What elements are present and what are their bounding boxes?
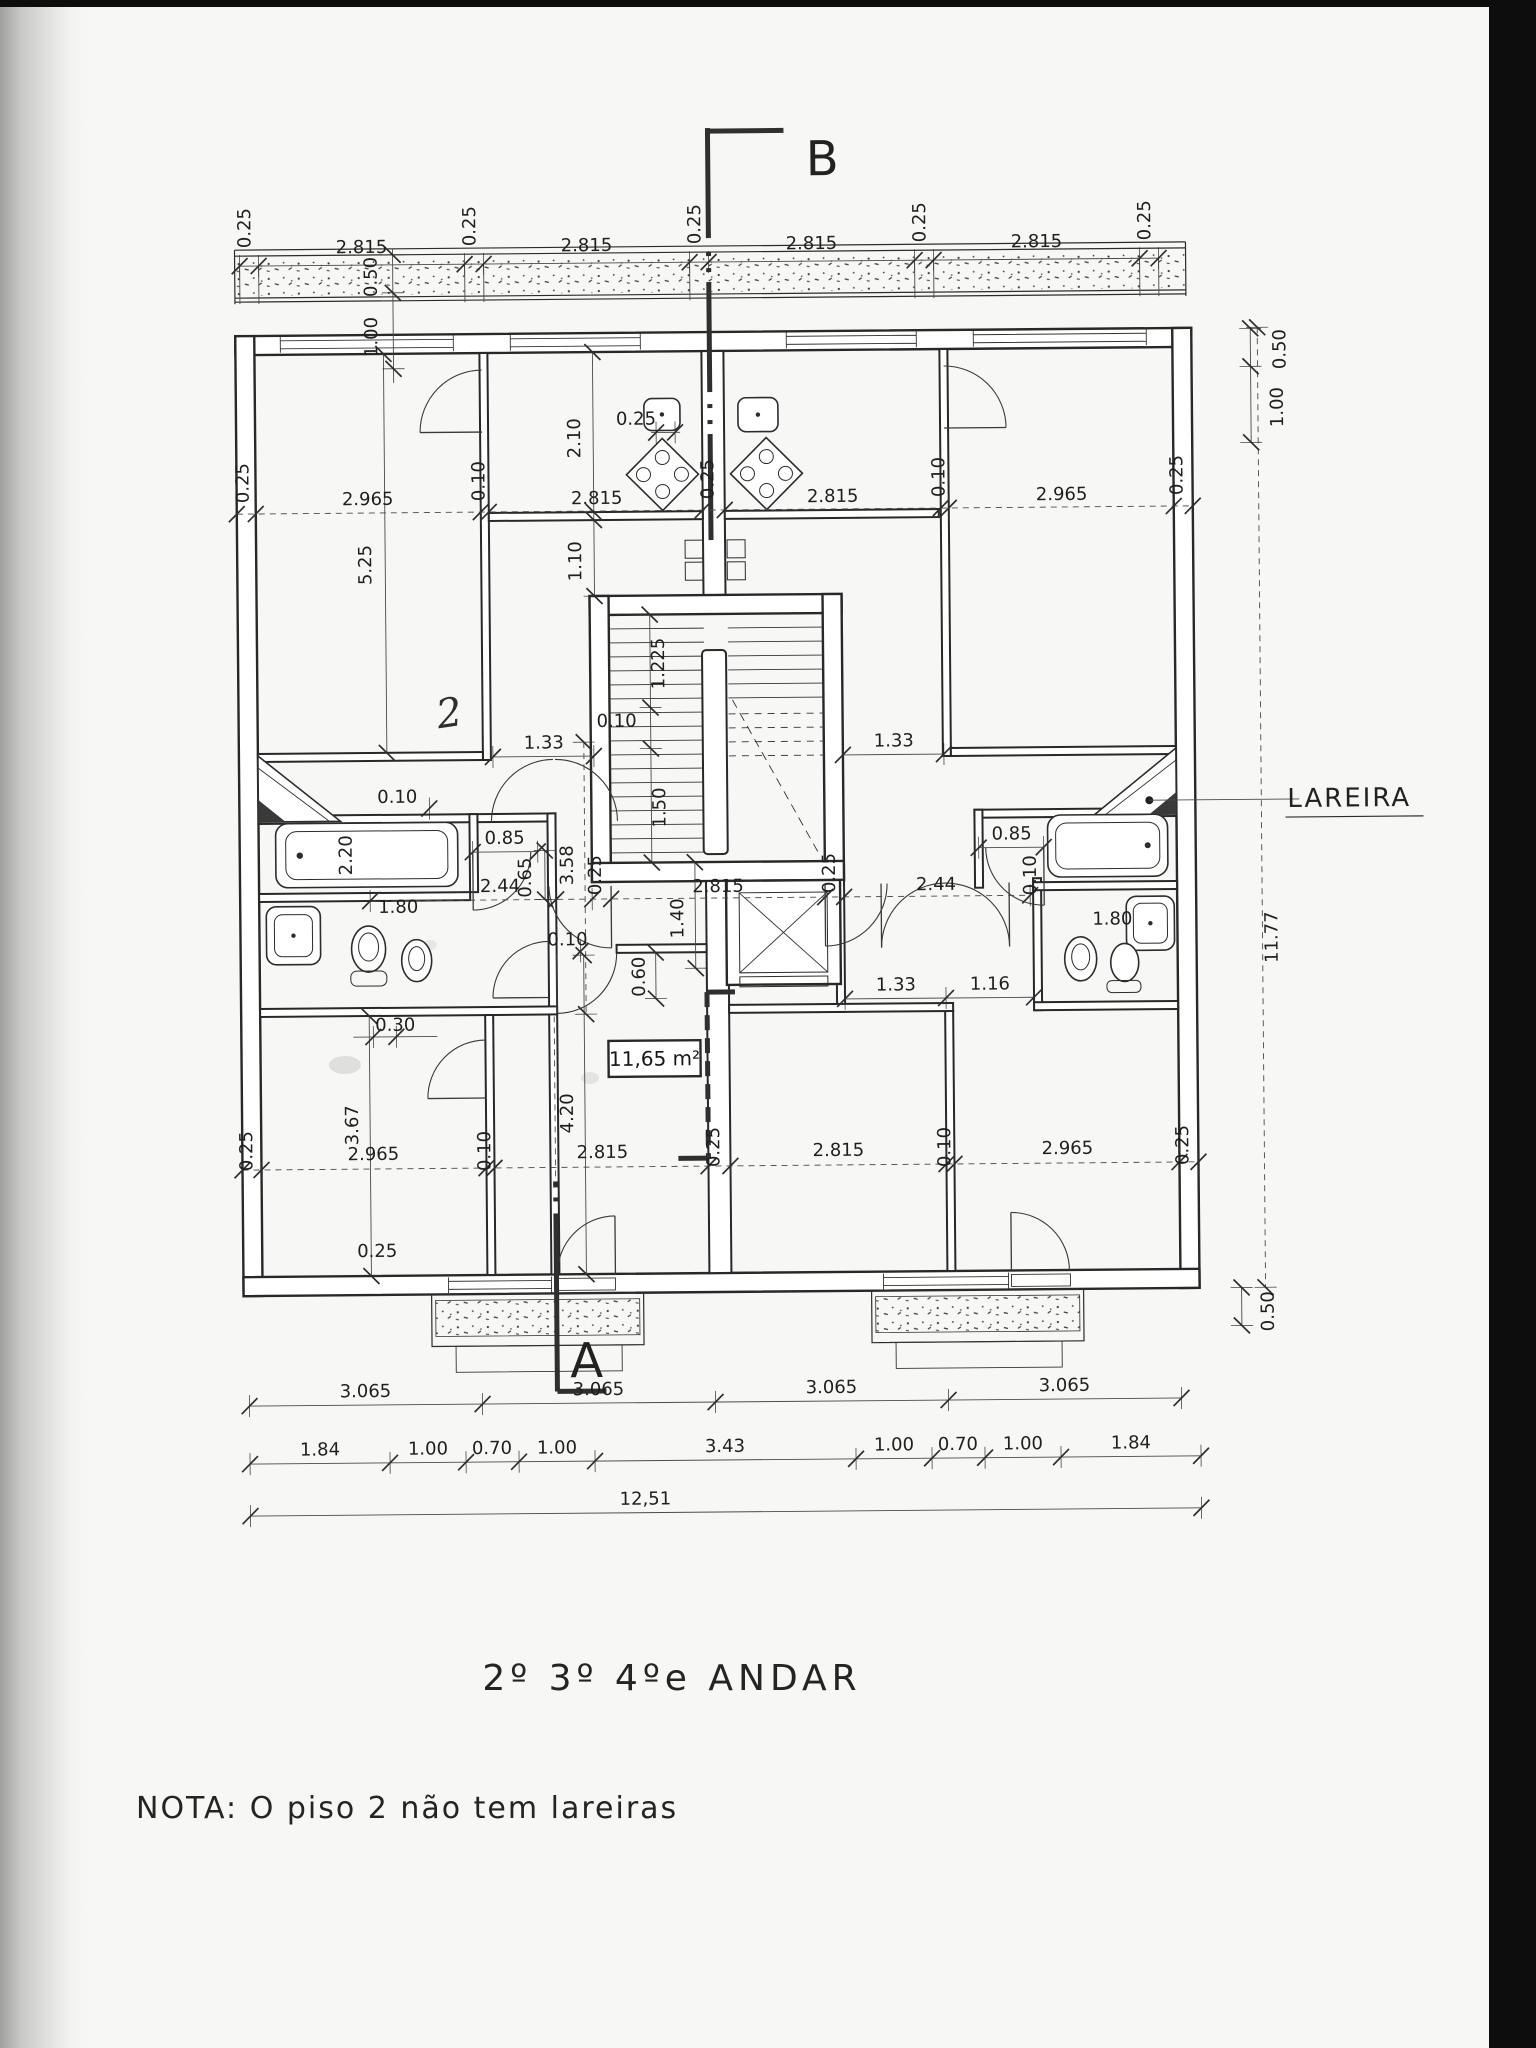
dim-label: 5.25 — [355, 545, 376, 585]
dim-label: 0.25 — [585, 855, 606, 895]
dim-label: 2.20 — [336, 835, 357, 875]
dim-label: 0.10 — [377, 787, 417, 808]
dim-label: 0.10 — [547, 929, 587, 950]
dim-label: 2.965 — [342, 489, 394, 510]
drawing-note: NOTA: O piso 2 não tem lareiras — [136, 1791, 678, 1826]
dim-label: 2.965 — [1041, 1138, 1093, 1159]
dim-label: 0.30 — [375, 1015, 415, 1036]
dim-label: 1.225 — [648, 638, 669, 690]
dim-label: 1.00 — [1267, 387, 1288, 427]
dim-label: 1.10 — [565, 541, 586, 581]
floor-plan-canvas: B A — [0, 0, 1536, 2048]
dim-label: 0.50 — [1258, 1291, 1279, 1331]
section-letter-b: B — [805, 131, 838, 187]
scanned-floor-plan-page: B A — [0, 0, 1536, 2048]
dim-label: 1.50 — [649, 787, 670, 827]
dim-label: 4.20 — [557, 1093, 578, 1133]
scan-edge-shadow — [0, 0, 95, 2048]
dim-label: 0.25 — [697, 459, 718, 499]
dim-label: 3.065 — [806, 1377, 858, 1398]
dim-label: 0.25 — [819, 853, 840, 893]
dim-label: 0.25 — [1172, 1125, 1193, 1165]
area-label: 11,65 m² — [609, 1046, 700, 1071]
dim-label: 11.77 — [1261, 911, 1282, 963]
dim-label: 0.25 — [234, 208, 255, 248]
bidet-right — [1111, 943, 1139, 981]
dim-label: 2.965 — [348, 1144, 400, 1165]
stair-newel — [702, 650, 728, 854]
dim-label: 1.16 — [970, 973, 1010, 994]
dim-label: 2.10 — [564, 418, 585, 458]
dim-label: 1.80 — [1092, 908, 1132, 929]
dim-label: 1.84 — [300, 1439, 340, 1460]
dim-label: 2.44 — [916, 874, 956, 895]
dim-label: 2.815 — [807, 486, 859, 507]
dim-label: 0.50 — [361, 257, 382, 297]
bidet-left — [402, 940, 432, 982]
dim-label: 3.43 — [705, 1436, 745, 1457]
dim-label: 0.10 — [474, 1131, 495, 1171]
dim-label: 2.965 — [1036, 484, 1088, 505]
dim-label: 0.70 — [938, 1434, 978, 1455]
dim-label: 0.25 — [703, 1127, 724, 1167]
dim-label: 3.065 — [340, 1381, 392, 1402]
dim-label: 2.815 — [336, 237, 388, 258]
dim-label: 2.815 — [561, 235, 613, 256]
dim-label: 3.065 — [573, 1379, 625, 1400]
dim-label: 0.25 — [232, 463, 253, 503]
dim-label: 12,51 — [620, 1488, 672, 1509]
dim-label: 2.815 — [786, 233, 838, 254]
scan-artifacts — [0, 0, 1536, 2048]
dim-label: 0.10 — [934, 1127, 955, 1167]
lareira-label: LAREIRA — [1287, 783, 1411, 814]
dim-label: 0.25 — [616, 409, 656, 430]
dim-label: 0.25 — [459, 206, 480, 246]
dim-label: 0.10 — [928, 457, 949, 497]
dim-label: 2.815 — [813, 1140, 865, 1161]
scan-top-bar — [0, 0, 1490, 7]
stair-core-wall-top — [590, 594, 842, 615]
dim-label: 0.10 — [596, 711, 636, 732]
dim-label: 1.00 — [1003, 1433, 1043, 1454]
dim-label: 2.815 — [1011, 231, 1063, 252]
dim-label: 3.58 — [557, 845, 578, 885]
dim-label: 1.33 — [876, 974, 916, 995]
dim-label: 0.85 — [991, 823, 1031, 844]
dim-label: 1.84 — [1111, 1432, 1151, 1453]
dim-label: 0.25 — [236, 1131, 257, 1171]
dim-label: 1.00 — [874, 1434, 914, 1455]
dim-label: 0.25 — [357, 1241, 397, 1262]
dim-label: 0.10 — [468, 461, 489, 501]
dim-label: 0.25 — [909, 202, 930, 242]
dim-label: 0.85 — [484, 828, 524, 849]
drawing-title: 2º 3º 4ºe ANDAR — [482, 1658, 861, 1699]
dim-label: 1.80 — [378, 897, 418, 918]
dim-label: 2.815 — [692, 876, 744, 897]
dim-label: 2.815 — [577, 1142, 629, 1163]
dim-label: 0.50 — [1269, 329, 1290, 369]
dim-label: 2.44 — [480, 876, 520, 897]
dim-label: 1.40 — [667, 898, 688, 938]
dim-label: 1.00 — [408, 1438, 448, 1459]
dim-label: 1.33 — [874, 730, 914, 751]
dim-label: 2.815 — [571, 488, 623, 509]
dim-label: 3.67 — [342, 1105, 363, 1145]
dim-label: 0.25 — [1134, 200, 1155, 240]
dim-label: 0.10 — [1020, 855, 1041, 895]
dim-label: 3.065 — [1039, 1375, 1091, 1396]
dim-label: 0.25 — [1166, 455, 1187, 495]
dim-label: 0.25 — [684, 204, 705, 244]
dim-label: 1.00 — [361, 317, 382, 357]
dim-label: 1.33 — [524, 732, 564, 753]
scan-right-bar — [1489, 0, 1536, 2048]
dim-label: 1.00 — [537, 1437, 577, 1458]
dim-label: 0.70 — [472, 1438, 512, 1459]
dim-label: 0.60 — [629, 957, 650, 997]
